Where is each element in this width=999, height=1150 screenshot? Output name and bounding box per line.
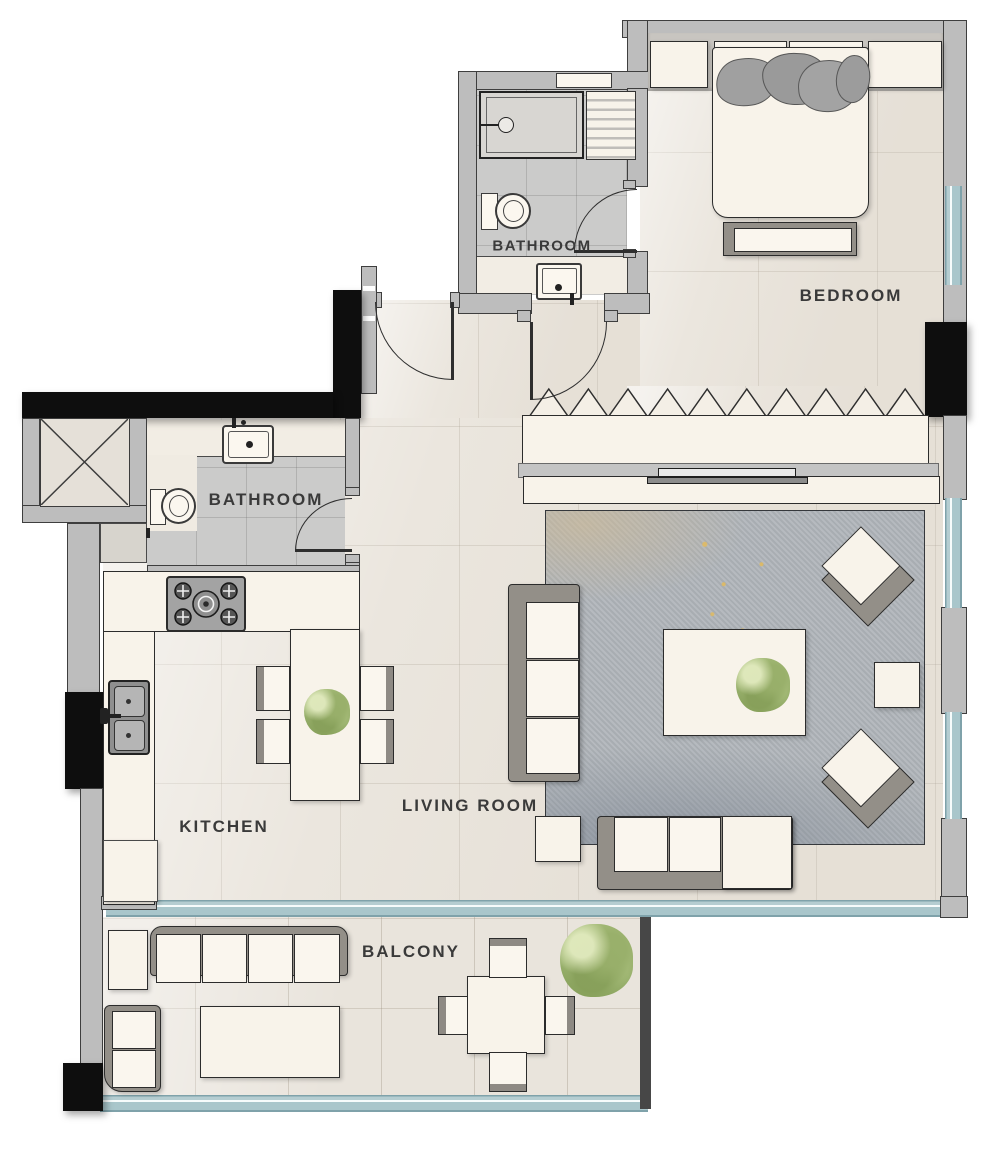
kitchen-chair (360, 666, 394, 711)
outdoor-sofa-cushion (248, 934, 293, 983)
nightstand-left (650, 41, 708, 88)
shaft-x-icon (41, 419, 128, 505)
south-window (106, 900, 942, 917)
living-window-2 (945, 712, 962, 819)
bathroom-top-north-wall (458, 71, 650, 90)
door-jamb (604, 310, 618, 322)
room-label-bathroom-top: BATHROOM (492, 238, 591, 255)
tv-screen-icon (658, 468, 796, 477)
kitchen-faucet-spout-icon (107, 714, 121, 718)
faucet-icon (232, 418, 236, 428)
entry-side-notch (363, 316, 375, 321)
room-label-kitchen: KITCHEN (179, 817, 269, 837)
floor-plan: BATHROOM BEDROOM BATHROOM KITCHEN LIVING… (0, 0, 999, 1150)
toilet-bowl-inner (169, 495, 189, 517)
bathroom-top-sink (536, 263, 582, 300)
corner-seat-cushion (112, 1050, 156, 1088)
kitchen-chair (360, 719, 394, 764)
fridge (103, 840, 158, 902)
shower-drain-icon (498, 117, 514, 133)
wardrobe (522, 415, 929, 468)
wall-band-west (22, 392, 333, 418)
balcony-chair (438, 996, 468, 1035)
entry-door-leaf (451, 302, 454, 380)
toilet-bowl-inner (503, 200, 524, 222)
balcony-lounge-chair (108, 930, 148, 990)
column-west-1 (65, 692, 103, 789)
entry-side-notch (363, 286, 375, 291)
sink-drain-icon (555, 284, 562, 291)
bathroom-main-door-leaf (295, 549, 352, 552)
shower-arm (481, 124, 499, 126)
sofa-cushion (614, 817, 668, 872)
chaise-lounger (722, 816, 792, 889)
door-jamb (345, 554, 360, 563)
room-label-bedroom: BEDROOM (800, 286, 903, 306)
side-table (874, 662, 920, 708)
bedroom-door-leaf (530, 322, 533, 400)
duct-shaft (40, 418, 130, 507)
bed-bench-top (734, 228, 852, 252)
kitchen-table-plant (304, 689, 350, 735)
sofa-cushion (526, 660, 579, 717)
bathroom-top-west-wall (458, 71, 477, 314)
faucet-knob-icon (241, 420, 246, 425)
balcony-dining-table (467, 976, 545, 1054)
column-entry (333, 290, 361, 418)
balcony-chair (489, 938, 527, 978)
corner-seat-cushion (112, 1011, 156, 1049)
nightstand-right (868, 41, 942, 88)
shower (479, 91, 584, 159)
door-jamb (623, 180, 636, 189)
corner-block-se (940, 896, 968, 918)
wall-niche (556, 73, 612, 88)
balcony-coffee-table (200, 1006, 340, 1078)
outdoor-sofa-cushion (156, 934, 201, 983)
tv-base-icon (647, 477, 808, 484)
sink-faucet-icon (570, 293, 574, 305)
stove (166, 576, 246, 632)
shelf-unit (586, 91, 636, 160)
corner-side-table (535, 816, 581, 862)
door-jamb (517, 310, 531, 322)
sofa-cushion (669, 817, 721, 872)
wardrobe-hangers-icon (528, 387, 926, 418)
room-label-balcony: BALCONY (362, 942, 460, 962)
bedroom-window (945, 186, 962, 285)
sofa-cushion (526, 602, 579, 659)
balcony-east-wall (640, 917, 651, 1109)
sofa-cushion (526, 718, 579, 774)
kitchen-chair (256, 666, 290, 711)
kitchen-chair (256, 719, 290, 764)
door-jamb (345, 487, 360, 496)
balcony-rail-glass (100, 1095, 648, 1112)
room-label-living-room: LIVING ROOM (402, 796, 538, 816)
balcony-chair (489, 1052, 527, 1092)
outdoor-sofa-cushion (202, 934, 247, 983)
east-wall-upper (943, 415, 967, 500)
stove-burners-icon (168, 578, 244, 630)
east-wall-mullion-1 (941, 607, 967, 714)
valve-icon (146, 528, 150, 538)
outdoor-sofa-cushion (294, 934, 340, 983)
column-west-2 (63, 1063, 103, 1111)
sink-drain-icon (126, 733, 131, 738)
room-label-bathroom-main: BATHROOM (209, 490, 324, 510)
sink-drain-icon (246, 441, 253, 448)
coffee-table-plant (736, 658, 790, 712)
sink-drain-icon (126, 699, 131, 704)
west-wall-mid (67, 523, 100, 695)
east-wall-mullion-2 (941, 818, 967, 902)
column-bedroom-right (925, 322, 967, 417)
lowered-box (100, 523, 147, 563)
balcony-chair (545, 996, 575, 1035)
vanity-sink (222, 425, 274, 464)
bathroom-main-east-wall-upper (345, 418, 360, 495)
balcony-plant (560, 924, 633, 997)
living-window-1 (945, 498, 962, 608)
west-wall-lower (80, 788, 103, 1068)
